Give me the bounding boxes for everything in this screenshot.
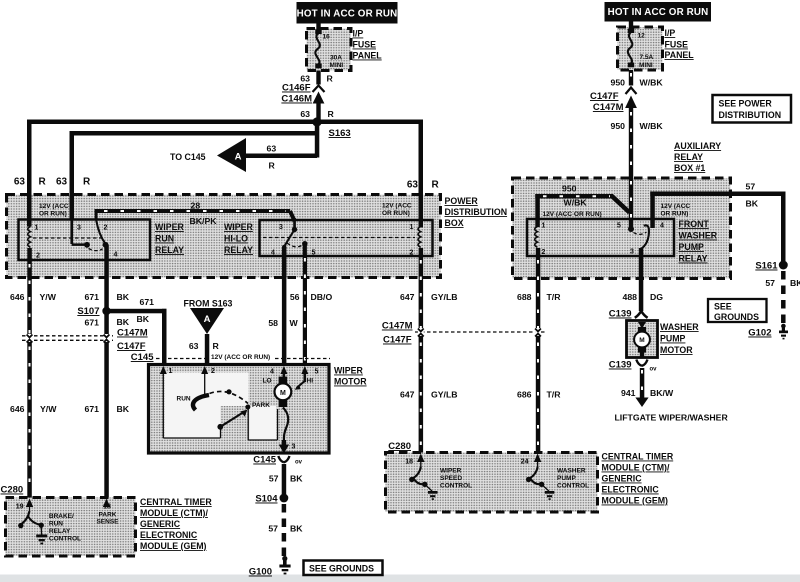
svg-text:57: 57 xyxy=(268,524,278,534)
svg-text:C280: C280 xyxy=(1,485,24,496)
svg-text:BK/W: BK/W xyxy=(650,388,674,398)
svg-text:LO: LO xyxy=(263,378,272,385)
svg-text:PUMP: PUMP xyxy=(660,334,686,344)
svg-text:C147M: C147M xyxy=(593,102,624,113)
svg-text:671: 671 xyxy=(85,292,100,302)
svg-text:C280: C280 xyxy=(388,441,411,452)
svg-text:AUXILIARY: AUXILIARY xyxy=(674,141,721,151)
svg-text:ELECTRONIC: ELECTRONIC xyxy=(140,530,198,540)
svg-text:56: 56 xyxy=(290,292,300,302)
svg-text:HOT IN ACC OR RUN: HOT IN ACC OR RUN xyxy=(297,9,398,20)
svg-text:WIPER: WIPER xyxy=(224,222,253,232)
svg-text:A: A xyxy=(235,152,242,163)
svg-text:RELAY: RELAY xyxy=(679,254,708,264)
svg-text:OR RUN): OR RUN) xyxy=(39,211,67,218)
svg-text:5: 5 xyxy=(312,250,316,257)
svg-text:T/R: T/R xyxy=(547,390,562,400)
svg-text:BK: BK xyxy=(117,404,130,414)
svg-text:R: R xyxy=(269,161,276,171)
svg-text:SENSE: SENSE xyxy=(96,519,119,526)
svg-text:C147M: C147M xyxy=(382,321,413,332)
svg-text:S107: S107 xyxy=(77,306,99,317)
svg-text:GY/LB: GY/LB xyxy=(431,390,458,400)
svg-text:63: 63 xyxy=(14,177,26,188)
svg-text:GY/LB: GY/LB xyxy=(431,292,458,302)
svg-text:PUMP: PUMP xyxy=(679,242,705,252)
svg-text:C147F: C147F xyxy=(590,91,619,102)
svg-text:OR RUN): OR RUN) xyxy=(382,210,410,217)
svg-text:BK: BK xyxy=(137,314,150,324)
svg-text:MINI: MINI xyxy=(330,62,344,69)
svg-text:WIPER: WIPER xyxy=(440,468,462,475)
svg-text:C147M: C147M xyxy=(117,328,148,339)
svg-text:Y/W: Y/W xyxy=(40,292,57,302)
svg-text:BK: BK xyxy=(290,524,303,534)
svg-text:12V (ACC OR RUN): 12V (ACC OR RUN) xyxy=(211,354,270,361)
svg-text:BK: BK xyxy=(790,278,800,288)
svg-text:R: R xyxy=(328,109,335,119)
svg-text:PARK: PARK xyxy=(252,402,270,409)
svg-text:DB/O: DB/O xyxy=(311,292,333,302)
svg-text:ELECTRONIC: ELECTRONIC xyxy=(602,485,660,495)
svg-text:18: 18 xyxy=(103,504,111,511)
svg-text:12V (ACC OR RUN): 12V (ACC OR RUN) xyxy=(543,211,602,218)
svg-text:5: 5 xyxy=(617,223,621,230)
svg-text:RUN: RUN xyxy=(177,396,191,403)
svg-text:4: 4 xyxy=(114,252,118,259)
svg-text:24: 24 xyxy=(521,459,529,466)
svg-text:Y/W: Y/W xyxy=(40,404,57,414)
svg-text:647: 647 xyxy=(400,292,415,302)
svg-text:S104: S104 xyxy=(255,494,278,505)
svg-text:12V (ACC: 12V (ACC xyxy=(39,203,69,210)
svg-text:R: R xyxy=(39,177,47,188)
svg-text:646: 646 xyxy=(10,292,25,302)
svg-text:C145: C145 xyxy=(253,455,276,466)
svg-text:SPEED: SPEED xyxy=(440,475,462,482)
svg-text:W: W xyxy=(290,318,299,328)
svg-text:647: 647 xyxy=(400,390,415,400)
svg-text:C139: C139 xyxy=(609,309,632,320)
svg-text:3: 3 xyxy=(630,249,634,256)
svg-text:WASHER: WASHER xyxy=(660,322,699,332)
svg-text:WIPER: WIPER xyxy=(155,222,184,232)
svg-text:3: 3 xyxy=(77,225,81,232)
svg-text:57: 57 xyxy=(746,182,756,192)
svg-text:GROUNDS: GROUNDS xyxy=(714,312,759,322)
svg-text:950: 950 xyxy=(611,78,626,88)
svg-text:686: 686 xyxy=(517,390,532,400)
svg-text:RELAY: RELAY xyxy=(155,245,184,255)
svg-text:RELAY: RELAY xyxy=(49,528,71,535)
svg-text:941: 941 xyxy=(621,388,636,398)
svg-text:BOX #1: BOX #1 xyxy=(674,163,705,173)
svg-text:18: 18 xyxy=(405,459,413,466)
svg-text:12V (ACC: 12V (ACC xyxy=(661,203,691,210)
svg-text:671: 671 xyxy=(85,404,100,414)
svg-text:2: 2 xyxy=(410,250,414,257)
svg-text:W/BK: W/BK xyxy=(564,198,588,208)
svg-text:BRAKE/: BRAKE/ xyxy=(49,513,74,520)
svg-text:671: 671 xyxy=(140,297,155,307)
svg-text:SEE GROUNDS: SEE GROUNDS xyxy=(309,564,374,574)
svg-text:CENTRAL TIMER: CENTRAL TIMER xyxy=(140,497,212,507)
svg-text:FUSE: FUSE xyxy=(353,40,377,50)
svg-text:1: 1 xyxy=(542,223,546,230)
svg-text:488: 488 xyxy=(623,292,638,302)
svg-text:1: 1 xyxy=(410,224,414,231)
svg-text:5: 5 xyxy=(315,369,319,376)
svg-text:1: 1 xyxy=(35,225,39,232)
svg-text:950: 950 xyxy=(611,121,626,131)
svg-text:LIFTGATE WIPER/WASHER: LIFTGATE WIPER/WASHER xyxy=(615,413,729,423)
svg-text:C139: C139 xyxy=(609,360,632,371)
svg-text:TO C145: TO C145 xyxy=(170,152,206,162)
svg-text:W/BK: W/BK xyxy=(640,78,664,88)
svg-text:950: 950 xyxy=(562,184,577,194)
svg-text:MODULE (CTM)/: MODULE (CTM)/ xyxy=(140,508,208,518)
svg-text:RELAY: RELAY xyxy=(674,152,703,162)
svg-text:R: R xyxy=(83,177,91,188)
svg-text:4: 4 xyxy=(271,250,275,257)
svg-text:GENERIC: GENERIC xyxy=(140,519,181,529)
svg-text:28: 28 xyxy=(191,201,201,211)
svg-text:T/R: T/R xyxy=(547,292,562,302)
svg-text:FRONT: FRONT xyxy=(679,219,710,229)
svg-text:BK: BK xyxy=(117,317,130,327)
svg-text:19: 19 xyxy=(16,504,24,511)
svg-text:57: 57 xyxy=(269,474,279,484)
svg-text:WIPER: WIPER xyxy=(334,366,363,376)
svg-text:63: 63 xyxy=(189,341,199,351)
svg-text:S161: S161 xyxy=(755,261,778,272)
svg-text:M: M xyxy=(280,390,286,397)
svg-text:BK: BK xyxy=(746,199,759,209)
svg-text:RUN: RUN xyxy=(155,234,174,244)
svg-text:3: 3 xyxy=(292,444,296,451)
svg-text:BK: BK xyxy=(117,292,130,302)
svg-text:4: 4 xyxy=(660,223,664,230)
svg-text:POWER: POWER xyxy=(445,196,479,206)
svg-text:BOX: BOX xyxy=(445,218,464,228)
svg-text:PUMP: PUMP xyxy=(557,475,576,482)
svg-text:PANEL: PANEL xyxy=(665,50,695,60)
svg-text:M: M xyxy=(639,337,644,344)
svg-text:63: 63 xyxy=(267,144,277,154)
svg-text:FROM S163: FROM S163 xyxy=(184,299,233,309)
svg-text:RELAY: RELAY xyxy=(224,245,253,255)
svg-text:4: 4 xyxy=(270,369,274,376)
svg-text:DISTRIBUTION: DISTRIBUTION xyxy=(719,110,782,120)
svg-text:CONTROL: CONTROL xyxy=(440,483,472,490)
svg-text:7.5A: 7.5A xyxy=(640,54,654,61)
svg-text:MOTOR: MOTOR xyxy=(334,377,367,387)
svg-text:GENERIC: GENERIC xyxy=(602,474,643,484)
svg-text:OR RUN): OR RUN) xyxy=(661,211,689,218)
svg-text:63: 63 xyxy=(300,109,310,119)
svg-text:3: 3 xyxy=(279,224,283,231)
svg-text:BK: BK xyxy=(290,474,303,484)
svg-text:R: R xyxy=(213,341,220,351)
svg-text:MODULE (GEM): MODULE (GEM) xyxy=(602,496,669,506)
svg-text:MODULE (GEM): MODULE (GEM) xyxy=(140,541,207,551)
svg-text:BK/PK: BK/PK xyxy=(190,216,218,226)
svg-text:ov: ov xyxy=(650,367,658,373)
svg-text:PANEL: PANEL xyxy=(353,51,383,61)
svg-text:MODULE (CTM)/: MODULE (CTM)/ xyxy=(602,463,670,473)
svg-text:MOTOR: MOTOR xyxy=(660,345,693,355)
svg-text:R: R xyxy=(327,74,334,84)
svg-text:PARK: PARK xyxy=(99,512,117,519)
svg-text:A: A xyxy=(204,314,211,325)
svg-text:DG: DG xyxy=(650,292,663,302)
svg-text:12: 12 xyxy=(638,33,646,40)
svg-text:C146F: C146F xyxy=(282,83,311,94)
svg-text:671: 671 xyxy=(85,318,100,328)
svg-text:I/P: I/P xyxy=(665,28,676,38)
svg-text:SEE: SEE xyxy=(714,302,732,312)
svg-text:ov: ov xyxy=(295,460,303,466)
svg-text:1: 1 xyxy=(169,368,173,375)
svg-text:30A: 30A xyxy=(330,55,342,62)
svg-text:CONTROL: CONTROL xyxy=(557,483,589,490)
svg-text:12V (ACC: 12V (ACC xyxy=(382,203,412,210)
svg-text:2: 2 xyxy=(104,225,108,232)
svg-text:HI: HI xyxy=(307,378,314,385)
svg-text:646: 646 xyxy=(10,404,25,414)
svg-text:RUN: RUN xyxy=(49,521,63,528)
svg-text:2: 2 xyxy=(211,368,215,375)
svg-text:S163: S163 xyxy=(329,128,351,139)
svg-text:WASHER: WASHER xyxy=(557,468,586,475)
svg-text:G100: G100 xyxy=(249,567,272,578)
svg-text:2: 2 xyxy=(542,249,546,256)
svg-text:58: 58 xyxy=(268,318,278,328)
svg-text:63: 63 xyxy=(407,180,419,191)
svg-text:W/BK: W/BK xyxy=(640,121,664,131)
svg-text:16: 16 xyxy=(323,34,331,41)
svg-text:688: 688 xyxy=(517,292,532,302)
svg-text:FUSE: FUSE xyxy=(665,40,689,50)
svg-text:HOT IN ACC OR RUN: HOT IN ACC OR RUN xyxy=(608,7,709,18)
svg-text:C147F: C147F xyxy=(117,341,146,352)
svg-text:G102: G102 xyxy=(748,328,771,339)
svg-text:C145: C145 xyxy=(131,352,154,363)
svg-text:HI-LO: HI-LO xyxy=(224,234,248,244)
svg-text:57: 57 xyxy=(765,278,775,288)
svg-text:63: 63 xyxy=(56,177,68,188)
svg-text:MINI: MINI xyxy=(639,62,653,69)
svg-text:R: R xyxy=(432,180,440,191)
svg-text:DISTRIBUTION: DISTRIBUTION xyxy=(445,207,508,217)
svg-text:I/P: I/P xyxy=(353,29,364,39)
svg-text:C146M: C146M xyxy=(281,94,312,105)
svg-text:CENTRAL TIMER: CENTRAL TIMER xyxy=(602,452,674,462)
svg-text:WASHER: WASHER xyxy=(679,231,718,241)
svg-text:SEE POWER: SEE POWER xyxy=(719,99,773,109)
svg-text:C147F: C147F xyxy=(383,335,412,346)
svg-text:2: 2 xyxy=(36,253,40,260)
svg-text:CONTROL: CONTROL xyxy=(49,536,81,543)
